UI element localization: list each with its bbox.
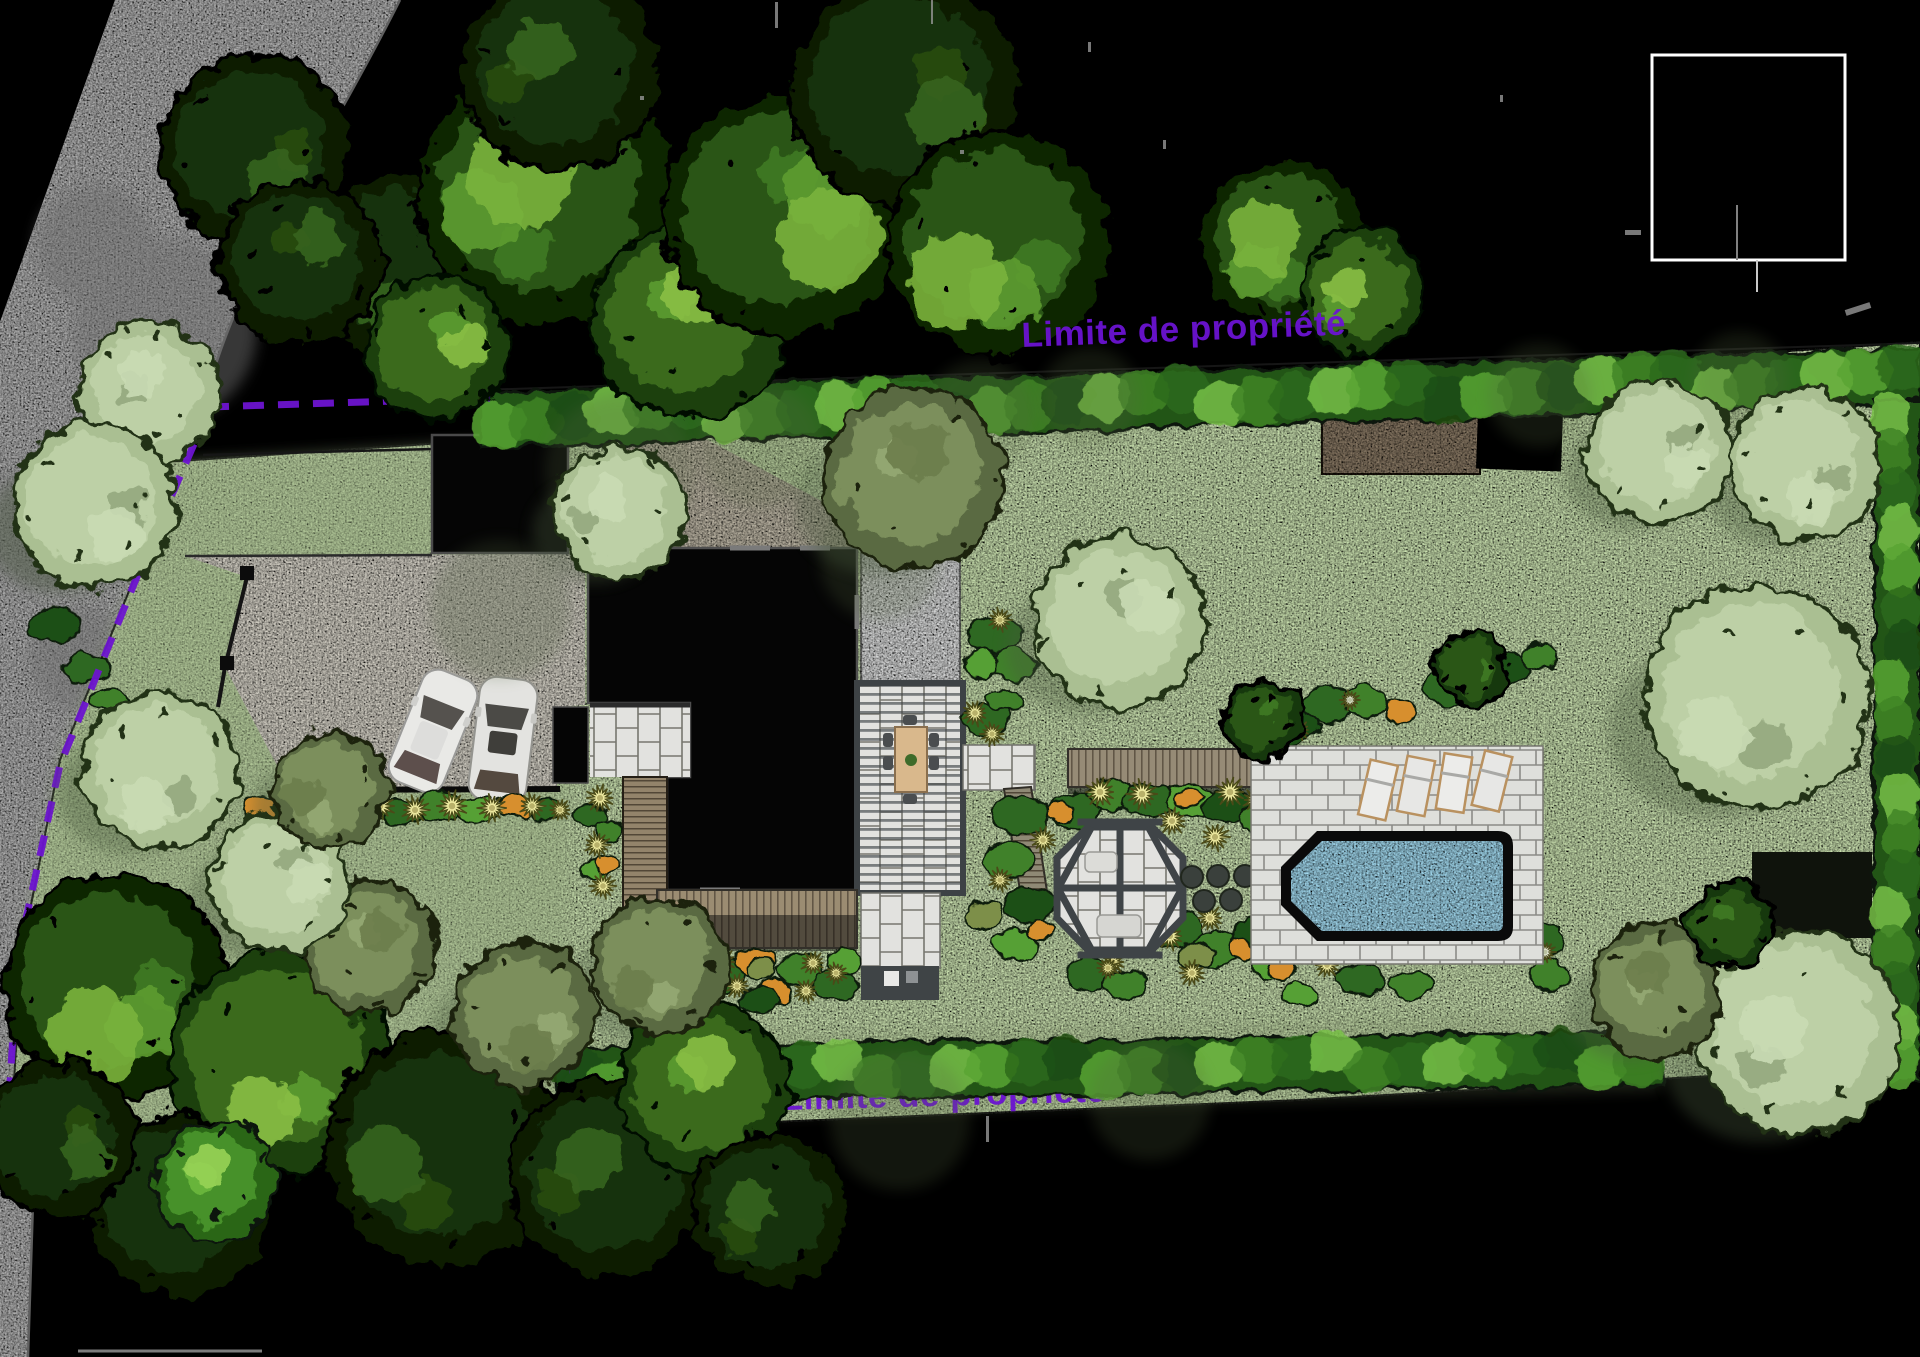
shrub — [1048, 801, 1076, 823]
pavilion-sofa — [1097, 915, 1141, 937]
canopy-shadow — [830, 1050, 970, 1190]
soil-patch — [1322, 415, 1480, 474]
shrub — [1282, 983, 1318, 1007]
tree — [1436, 632, 1508, 704]
shrub — [1336, 965, 1384, 995]
tree — [365, 275, 509, 419]
shrub — [63, 653, 107, 683]
driveway-north-edge — [185, 555, 432, 556]
outdoor-kitchen — [861, 966, 939, 1000]
shrub — [1028, 920, 1052, 940]
tree — [592, 897, 728, 1033]
paved-landing — [963, 745, 1035, 790]
shrub — [1530, 961, 1570, 989]
paved-path-south — [861, 893, 940, 968]
legend-box — [1652, 55, 1845, 292]
tree — [0, 1060, 136, 1216]
tree — [13, 423, 177, 587]
shrub — [1004, 887, 1056, 923]
pool-terrace — [1251, 746, 1543, 964]
tree — [155, 1120, 275, 1240]
canopy-shadow — [1488, 343, 1592, 447]
tree — [825, 388, 1005, 568]
gate-post — [220, 656, 234, 670]
tree — [1588, 380, 1732, 524]
pergola-terrace — [857, 683, 963, 893]
shrub — [29, 607, 81, 643]
tree — [272, 732, 388, 848]
gate-post — [240, 566, 254, 580]
tree — [1645, 585, 1869, 809]
canopy-shadow — [1040, 348, 1140, 448]
swimming-pool — [1281, 831, 1513, 941]
tree — [554, 446, 686, 578]
west-patio — [590, 703, 690, 777]
house-west-wing — [553, 707, 588, 783]
tree — [453, 943, 597, 1087]
canopy-shadow — [1090, 1040, 1210, 1160]
tree — [218, 180, 382, 344]
tree — [1222, 680, 1302, 760]
pool-water — [1291, 841, 1503, 931]
tree — [692, 1132, 848, 1288]
tree — [1686, 881, 1774, 969]
shrub — [962, 651, 998, 679]
shrub — [987, 688, 1023, 712]
tree — [82, 692, 238, 848]
shrub — [984, 842, 1032, 878]
shrub — [1522, 642, 1558, 668]
tree — [1034, 536, 1206, 708]
pavilion-sofa — [1085, 852, 1117, 872]
shrub — [748, 957, 776, 979]
tree — [1730, 388, 1882, 540]
landscape-site-plan: Limite de propriété Limite de propriété — [0, 0, 1920, 1357]
shrub — [594, 854, 618, 874]
shrub — [1175, 789, 1201, 809]
shrub — [967, 901, 1003, 929]
garden-pavilion — [1057, 822, 1183, 955]
shrub — [1384, 700, 1416, 724]
shrub — [1388, 971, 1432, 999]
shrub — [740, 988, 780, 1012]
